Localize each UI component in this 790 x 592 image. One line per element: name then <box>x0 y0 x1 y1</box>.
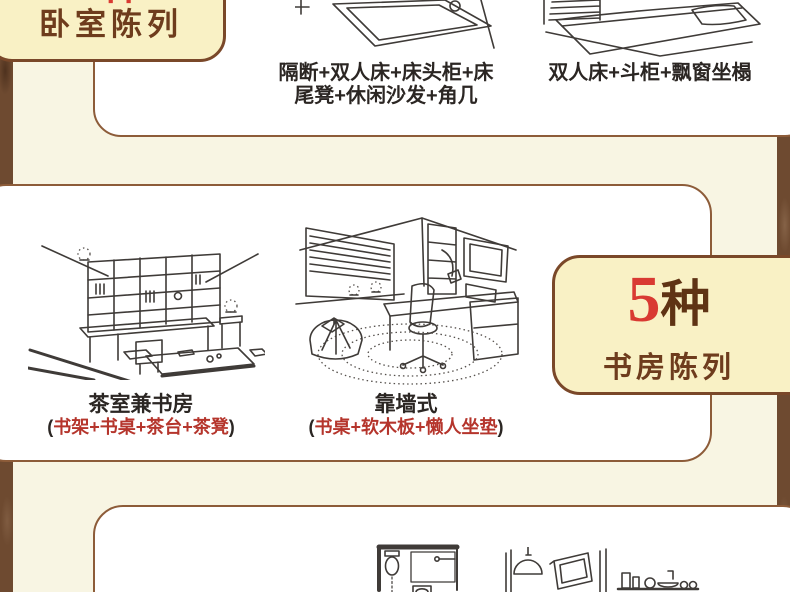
bedroom-caption-2: 双人床+斗柜+飘窗坐榻 <box>500 62 790 85</box>
study-badge-count: 5 <box>628 263 661 336</box>
double-bed-bay-window-illustration <box>542 0 767 58</box>
layout-items: (书架+书桌+茶台+茶凳) <box>11 416 271 439</box>
study-badge: 5种 书房陈列 <box>552 255 790 395</box>
wall-desk-study-illustration <box>292 198 520 390</box>
paren-close: ) <box>498 417 504 437</box>
study-layout-caption-2: 靠墙式 (书桌+软木板+懒人坐垫) <box>276 393 536 439</box>
floorplan-card <box>93 505 790 592</box>
bedroom-badge: 7种 卧室陈列 <box>0 0 226 62</box>
layout-name: 靠墙式 <box>276 393 536 416</box>
shelf-elevation-illustration <box>500 547 700 592</box>
study-badge-unit: 种 <box>661 276 711 332</box>
caption-line: 隔断+双人床+床头柜+床 <box>236 62 536 85</box>
paren-close: ) <box>229 417 235 437</box>
layout-items: (书桌+软木板+懒人坐垫) <box>276 416 536 439</box>
bedroom-badge-title: 卧室陈列 <box>0 8 223 42</box>
bathroom-floorplan-illustration <box>375 542 465 592</box>
caption-line: 双人床+斗柜+飘窗坐榻 <box>500 62 790 85</box>
bedroom-caption-1: 隔断+双人床+床头柜+床 尾凳+休闲沙发+角几 <box>236 62 536 108</box>
bedroom-badge-count-partial: 7种 <box>0 0 223 7</box>
layout-items-text: 书架+书桌+茶台+茶凳 <box>53 417 229 437</box>
caption-line: 尾凳+休闲沙发+角几 <box>236 85 536 108</box>
study-badge-count-line: 5种 <box>555 268 783 349</box>
partition-double-bed-illustration <box>295 0 505 50</box>
promo-poster-page: 隔断+双人床+床头柜+床 尾凳+休闲沙发+角几 双人床+斗柜+飘窗坐榻 7种 卧… <box>0 0 790 592</box>
study-layout-caption-1: 茶室兼书房 (书架+书桌+茶台+茶凳) <box>11 393 271 439</box>
layout-name: 茶室兼书房 <box>11 393 271 416</box>
tea-room-study-illustration <box>28 210 265 380</box>
study-badge-title: 书房陈列 <box>555 351 783 385</box>
layout-items-text: 书桌+软木板+懒人坐垫 <box>314 417 497 437</box>
